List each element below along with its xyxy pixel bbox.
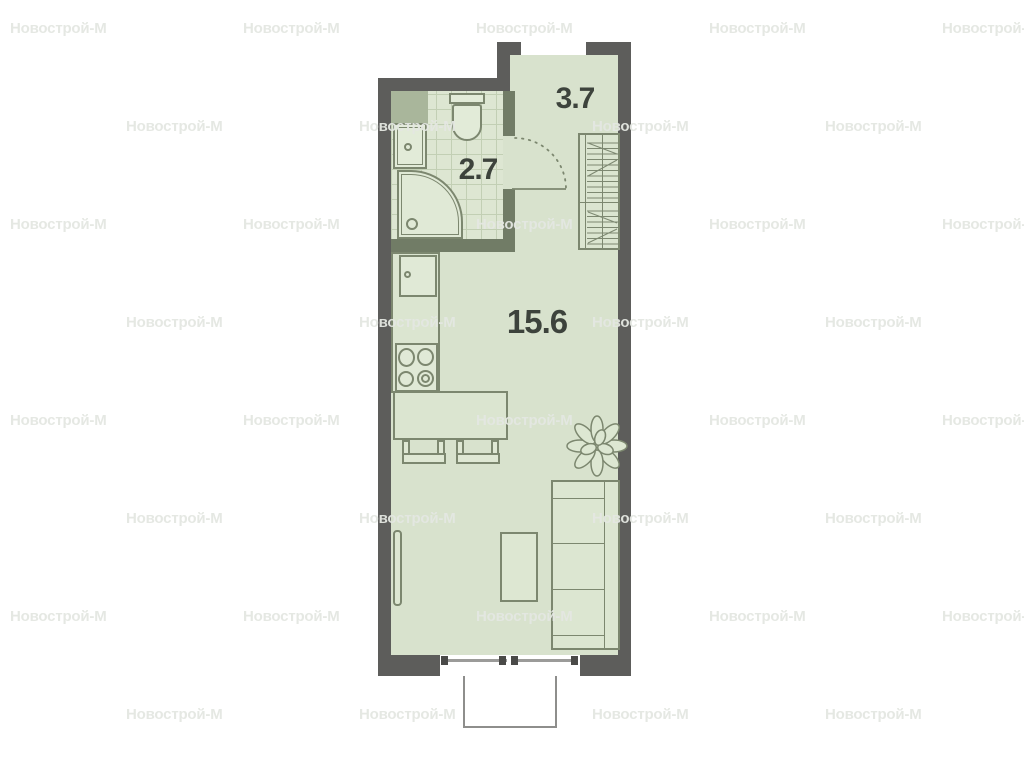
- area-label-livingroom: 15.6: [499, 303, 575, 341]
- area-label-bathroom: 2.7: [450, 153, 506, 187]
- plant-icon: [567, 416, 627, 476]
- floorplan-image: 3.7 2.7 15.6 Новострой-МНовострой-МНовос…: [0, 0, 1024, 768]
- door-swing-arc: [515, 138, 566, 189]
- area-label-hall: 3.7: [545, 82, 605, 116]
- plan-annotations: [0, 0, 1024, 768]
- wardrobe-diagonals: [588, 143, 617, 243]
